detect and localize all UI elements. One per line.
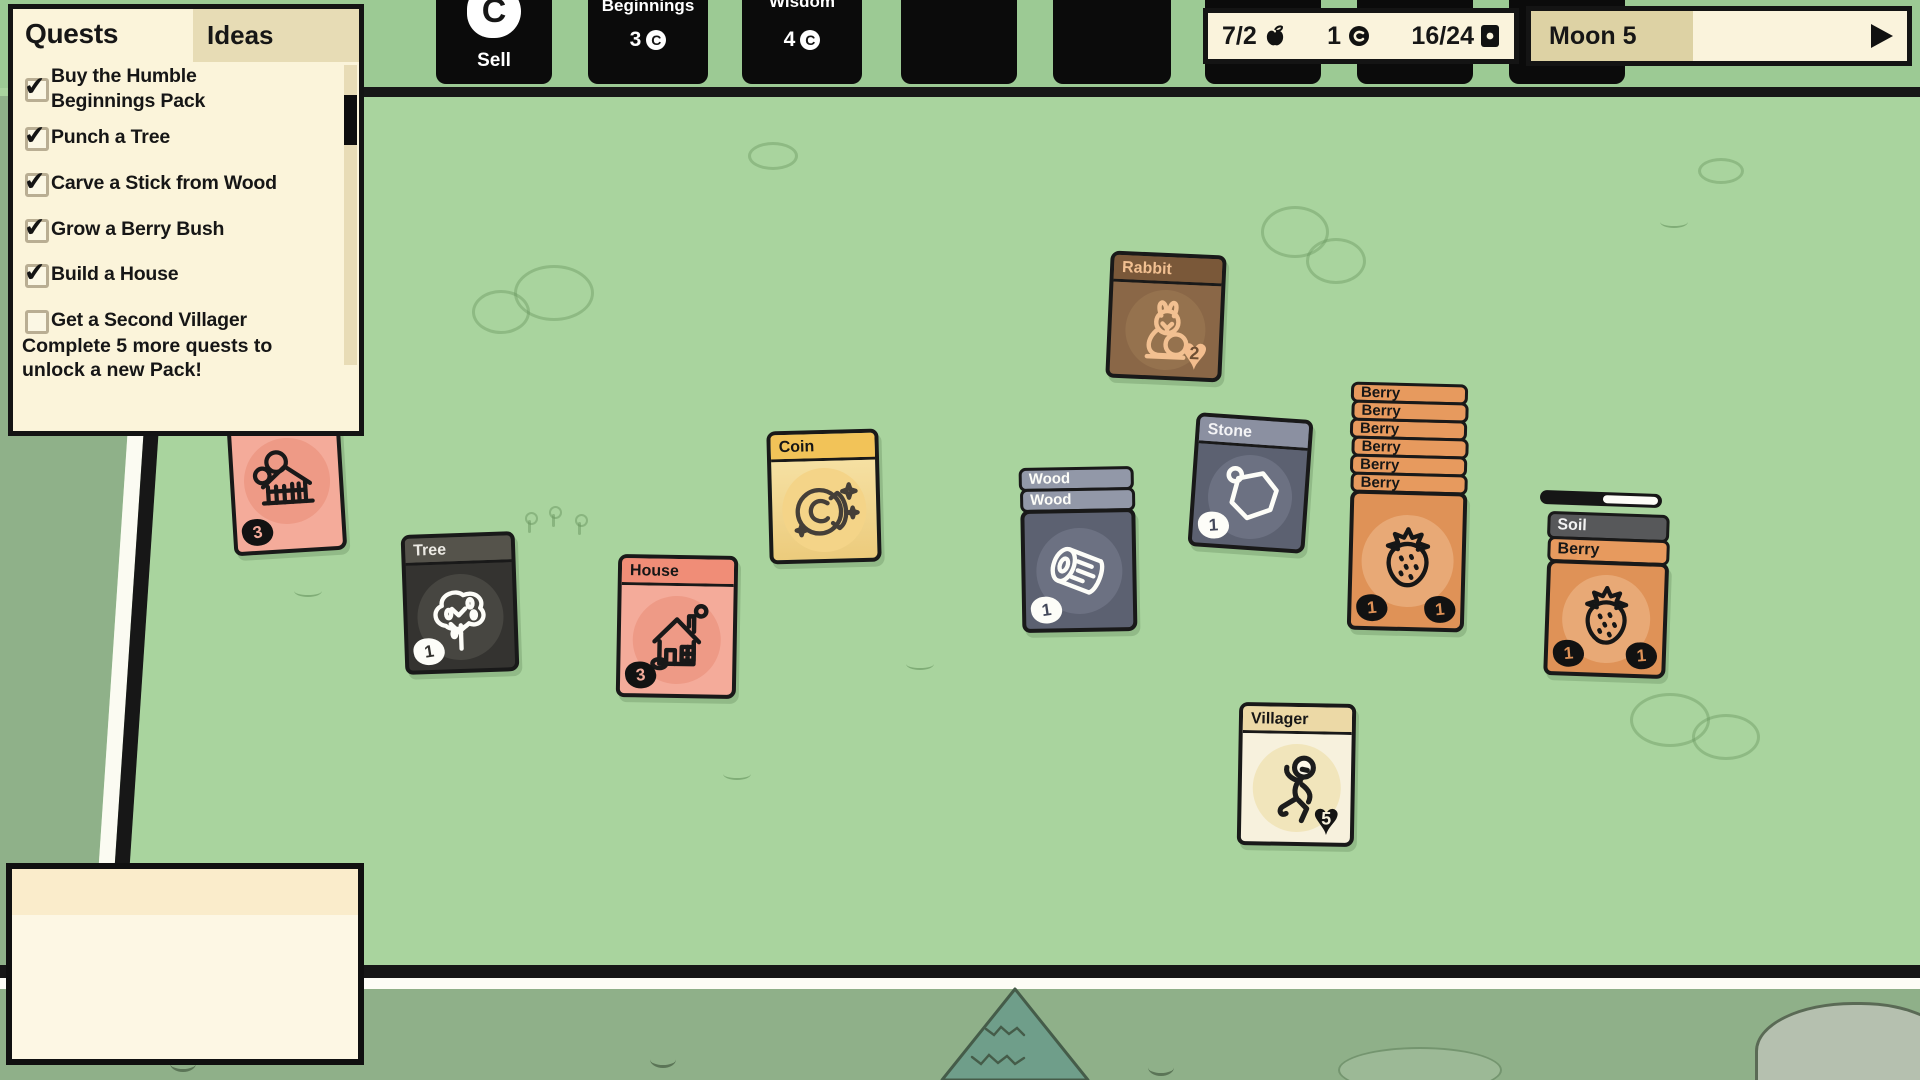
growth-progress-fill — [1603, 495, 1658, 505]
coin-icon — [1347, 24, 1371, 48]
rabbit-card[interactable]: Rabbit ♥ 2 — [1105, 251, 1226, 383]
checkbox-unchecked — [25, 310, 49, 334]
grass-doodle — [294, 585, 322, 597]
sprout-doodle — [578, 522, 581, 535]
strawberry-icon — [1366, 520, 1448, 602]
scrub-doodle — [1148, 1059, 1174, 1076]
wood-stack[interactable]: Wood Wood 1 — [1019, 466, 1137, 633]
tab-ideas[interactable]: Ideas — [193, 9, 359, 62]
quests-panel: Ideas Quests ✔ Buy the Humble Beginnings… — [8, 4, 364, 436]
berry-card[interactable]: 1 1 — [1347, 490, 1468, 633]
quests-footer-line1: Complete 5 more quests to — [22, 334, 272, 358]
coin-icon — [783, 469, 865, 551]
coin-icon: C — [646, 30, 666, 50]
pack-price: 3 C — [588, 28, 708, 52]
status-bar: 7/2 1 16/24 — [1203, 8, 1519, 64]
food-counter: 7/2 — [1222, 22, 1287, 51]
cloud-doodle — [748, 142, 798, 170]
shed-icon — [245, 439, 328, 522]
villager-card[interactable]: Villager ♥ 5 — [1237, 702, 1356, 847]
wood-card[interactable]: 1 — [1020, 508, 1137, 633]
growth-progress-bar — [1540, 490, 1662, 508]
berry-card-header[interactable]: Berry — [1351, 400, 1469, 424]
tab-ideas-label: Ideas — [207, 20, 274, 51]
card-title: Tree — [405, 535, 512, 566]
card-counter: 16/24 — [1411, 22, 1500, 51]
food-icon — [1263, 24, 1287, 48]
board-top-border — [150, 87, 1920, 97]
moon-timer: Moon 5 — [1526, 6, 1912, 66]
coin-icon: C — [800, 30, 820, 50]
soil-berry-stack[interactable]: Soil Berry 1 1 — [1542, 511, 1670, 679]
card-title: Villager — [1243, 706, 1352, 735]
stone-card[interactable]: Stone 1 — [1187, 412, 1313, 554]
fast-forward-icon[interactable] — [1871, 24, 1893, 48]
pack-title: Wisdom — [742, 0, 862, 12]
checkbox-checked: ✔ — [25, 127, 49, 151]
sprout-doodle — [528, 520, 531, 533]
value-badge: 1 — [1423, 594, 1456, 624]
tab-quests-label[interactable]: Quests — [25, 18, 118, 50]
coin-icon: C — [467, 0, 521, 38]
checkbox-checked: ✔ — [25, 264, 49, 288]
grass-doodle — [1660, 216, 1688, 228]
game-screen: C Sell Beginnings 3 C Wisdom 4 C 7/2 1 — [0, 0, 1920, 1080]
grass-doodle — [723, 768, 751, 780]
pack-price: 4 C — [742, 28, 862, 52]
scrub-doodle — [650, 1051, 676, 1068]
card-title: Coin — [770, 433, 875, 463]
pack-title: Beginnings — [588, 0, 708, 16]
card-title: House — [622, 558, 734, 587]
pack-card-facedown[interactable] — [901, 0, 1017, 84]
checkbox-checked: ✔ — [25, 173, 49, 197]
berry-card[interactable]: 1 1 — [1543, 559, 1669, 679]
value-badge: 1 — [1625, 641, 1658, 671]
health-badge: ♥ 5 — [1304, 798, 1349, 841]
sell-card-label: Sell — [436, 50, 552, 72]
tree-card[interactable]: Tree 1 — [401, 531, 520, 675]
checkbox-checked: ✔ — [25, 78, 49, 102]
bush-doodle — [472, 290, 530, 334]
checkbox-checked: ✔ — [25, 219, 49, 243]
rock-doodle — [1755, 1002, 1920, 1080]
pack-card-humble-beginnings[interactable]: Beginnings 3 C — [588, 0, 708, 84]
bush-doodle — [1692, 714, 1760, 760]
moon-label: Moon 5 — [1549, 22, 1637, 51]
pond-doodle — [1338, 1047, 1502, 1080]
health-badge: ♥ 2 — [1171, 332, 1217, 376]
scrollbar-track — [344, 65, 357, 365]
quests-footer-line2: unlock a new Pack! — [22, 358, 202, 382]
sell-card[interactable]: C Sell — [436, 0, 552, 84]
pack-card-seeking-wisdom[interactable]: Wisdom 4 C — [742, 0, 862, 84]
grass-doodle — [906, 658, 934, 670]
cloud-doodle — [1698, 158, 1744, 184]
card-count-icon — [1480, 24, 1500, 48]
berry-stack[interactable]: Berry Berry Berry Berry Berry Berry 1 1 — [1345, 382, 1468, 633]
pack-card-facedown[interactable] — [1053, 0, 1171, 84]
tooltip-header — [12, 869, 358, 915]
house-card[interactable]: House 3 — [616, 554, 738, 699]
tooltip-box — [6, 863, 364, 1065]
bush-doodle — [1306, 238, 1366, 284]
coin-card[interactable]: Coin — [766, 429, 881, 565]
scrollbar-thumb[interactable] — [344, 95, 357, 145]
coin-counter: 1 — [1327, 22, 1371, 51]
sprout-doodle — [552, 514, 555, 527]
pine-tree — [938, 987, 1092, 1080]
value-badge: 3 — [240, 516, 275, 548]
